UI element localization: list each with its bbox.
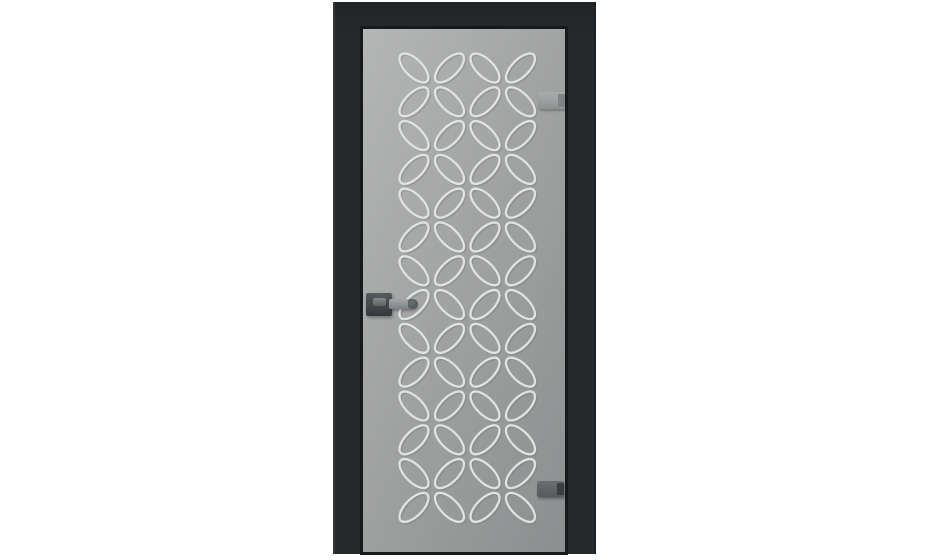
bottom-hinge bbox=[537, 481, 564, 497]
top-hinge bbox=[538, 92, 565, 109]
bottom-hinge-clamp bbox=[557, 483, 564, 495]
ellipse-flower-pattern bbox=[363, 29, 565, 552]
door-handle-lock-knob bbox=[373, 298, 386, 306]
door-frame bbox=[333, 2, 596, 554]
product-photo-stage bbox=[0, 0, 933, 560]
door-glass-panel bbox=[363, 29, 565, 552]
door-handle-lever bbox=[389, 299, 417, 309]
door-handle-lever-tip bbox=[408, 299, 418, 309]
top-hinge-clamp bbox=[558, 94, 565, 107]
